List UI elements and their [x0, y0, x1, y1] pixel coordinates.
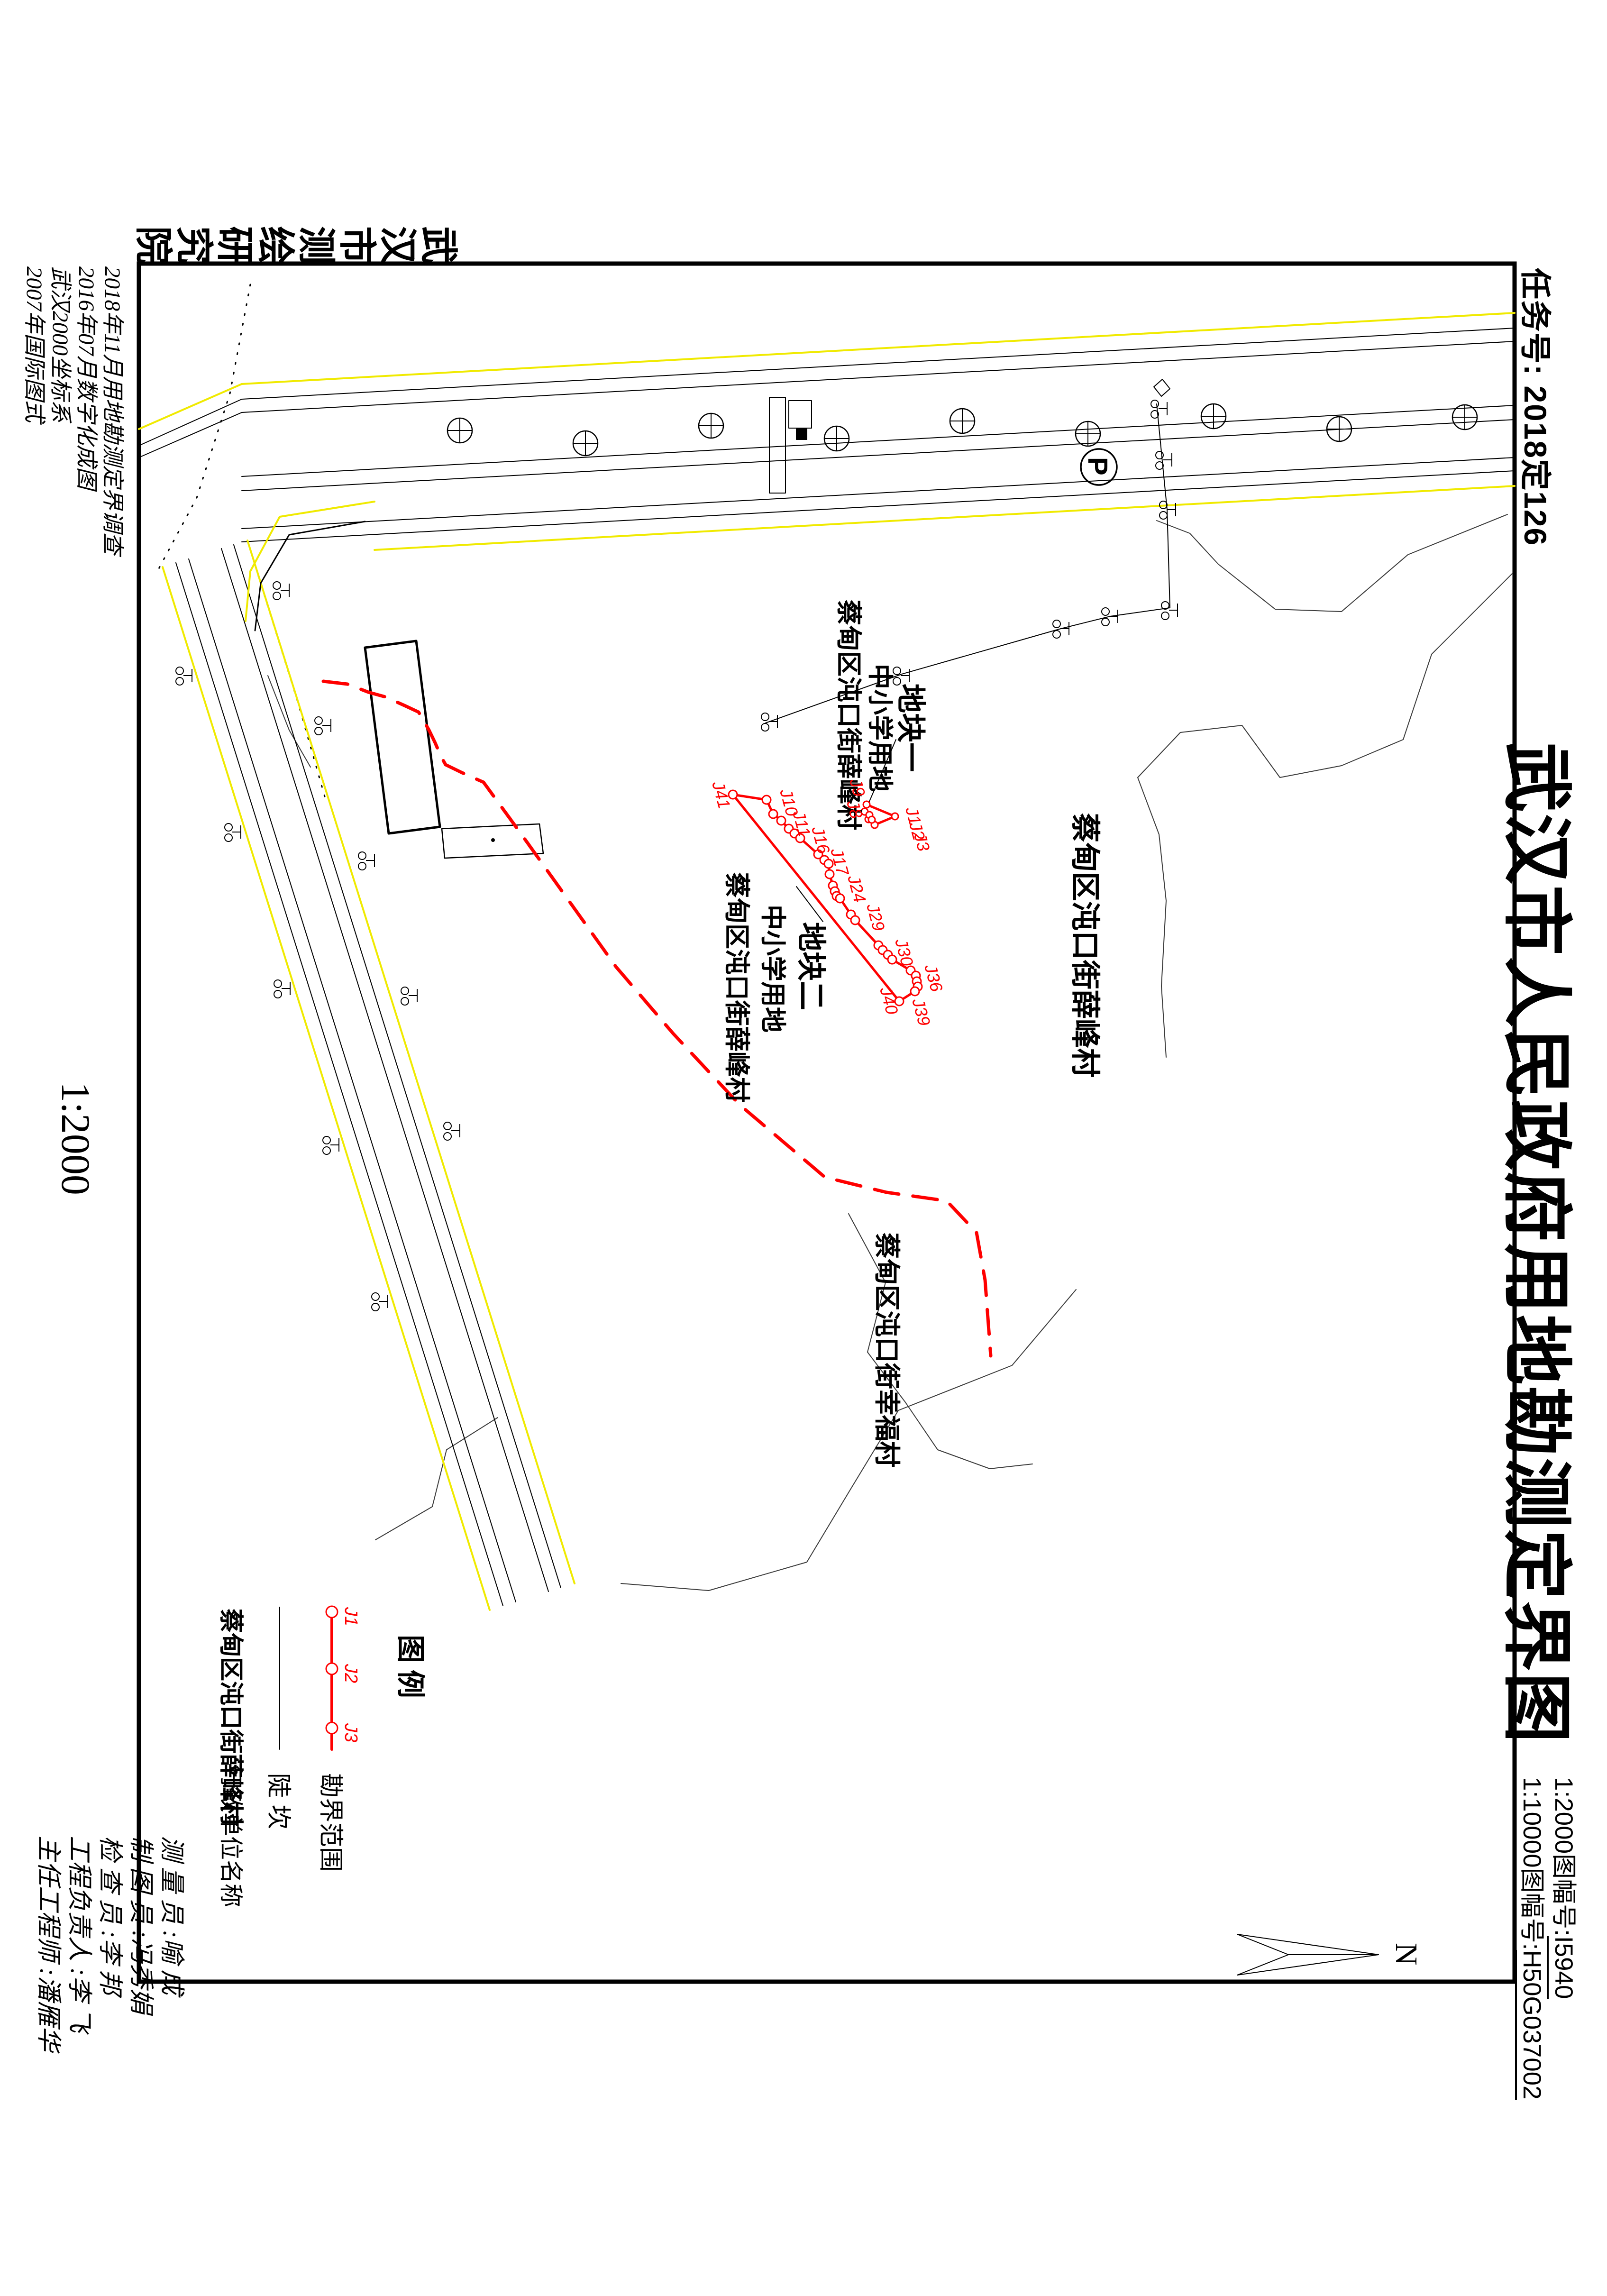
road-line — [242, 457, 1515, 529]
map-label-parcel2-name: 地块二 — [794, 922, 827, 1010]
lamp-icon — [893, 667, 901, 675]
sheet-code-10000: H50G037002 — [1515, 1950, 1546, 2099]
lamp-icon — [225, 834, 232, 842]
terrain-line — [621, 1290, 1076, 1591]
map-canvas: 蔡甸区沌口街薛峰村蔡甸区沌口街幸福村地块一中小学用地蔡甸区沌口街薛峰村地块二中小… — [0, 0, 1607, 2296]
task-number: 任务号: 2018定126 — [1515, 268, 1561, 546]
sheet-number-2000: 1:2000图幅号:I5940 — [1548, 1777, 1580, 2100]
building-outline — [365, 641, 440, 833]
legend-item-label: 陡 坎 — [265, 1773, 292, 1829]
agency-stamp: 武汉市测绘研究院 — [133, 214, 459, 269]
survey-note-line: 2007年国际图式 — [21, 266, 47, 555]
road-line — [242, 405, 1515, 476]
road-line — [139, 412, 242, 457]
boundary-vertex-icon — [762, 796, 771, 804]
road-line — [242, 341, 1515, 412]
lamp-icon — [1102, 618, 1109, 626]
boundary-vertex-icon — [769, 810, 777, 818]
map-scale: 1:2000 — [52, 1082, 100, 1195]
lamp-icon — [323, 1136, 330, 1144]
legend-vertex-icon — [326, 1663, 338, 1674]
boundary-vertex-icon — [851, 916, 859, 924]
terrain-line — [1157, 514, 1507, 612]
road-line — [242, 420, 1515, 491]
scanned-survey-map-page: { "header": { "task_no": "任务号: 2018定126"… — [0, 0, 1607, 2296]
legend-title: 图例 — [394, 1635, 426, 1705]
j-point-label: J41 — [708, 778, 734, 811]
staff-line: 工程负责人 :李 飞 — [64, 1836, 94, 2051]
boundary-vertex-icon — [911, 987, 919, 996]
map-label-parcel1-use: 中小学用地 — [866, 664, 894, 792]
page-title: 武汉市人民政府用地勘测定界图 — [1492, 742, 1594, 1744]
boundary-vertex-icon — [892, 813, 898, 820]
staff-line: 主任工程师 :潘雁华 — [33, 1836, 64, 2051]
lamp-icon — [372, 1303, 379, 1311]
lamp-icon — [761, 723, 769, 731]
sheet-code-2000: I5940 — [1547, 1936, 1578, 1999]
legend-point-label: J2 — [341, 1664, 361, 1683]
parking-symbol-label: P — [1082, 457, 1113, 476]
road-edge-yellow — [163, 567, 490, 1610]
lamp-icon — [358, 862, 366, 870]
terrain-line — [1138, 574, 1512, 1057]
legend-item-label: 行政单位名称 — [218, 1765, 244, 1907]
lamp-icon — [1053, 620, 1060, 628]
road-line — [221, 549, 548, 1592]
boundary-vertex-icon — [836, 894, 844, 903]
north-arrow-line — [1237, 1934, 1288, 1955]
road-line — [176, 563, 503, 1606]
j-point-label: J39 — [908, 996, 934, 1028]
north-label: N — [1389, 1943, 1424, 1966]
boundary-vertex-icon — [868, 816, 875, 823]
map-label-parcel2-village: 蔡甸区沌口街薛峰村 — [722, 872, 751, 1103]
road-line — [242, 328, 1515, 399]
lamp-icon — [176, 667, 183, 675]
building-outline — [789, 401, 812, 428]
lamp-icon — [273, 582, 281, 589]
legend-point-label: J1 — [341, 1607, 361, 1626]
north-arrow-line — [1237, 1934, 1379, 1955]
staff-line: 检 查 员 :李 邦 — [94, 1836, 125, 2051]
lamp-icon — [225, 823, 232, 831]
lamp-icon — [401, 987, 409, 995]
lamp-icon — [1053, 631, 1060, 638]
staff-line: 测 量 员 :喻 成 — [156, 1836, 187, 2051]
road-line — [242, 471, 1515, 542]
staff-line: 制 图 员 :冯秀娟 — [125, 1836, 156, 2051]
road-line — [189, 559, 516, 1602]
annex-dot — [491, 838, 495, 842]
lamp-icon — [315, 727, 322, 735]
north-arrow-line — [1237, 1955, 1379, 1975]
road-edge-yellow — [374, 486, 1515, 550]
road-edge-yellow — [242, 313, 1515, 384]
map-label-village-xingfu: 蔡甸区沌口街幸福村 — [872, 1233, 902, 1467]
building-outline — [769, 397, 785, 493]
lamp-icon — [323, 1147, 330, 1154]
j-point-label: J24 — [844, 872, 870, 905]
map-label-parcel1-name: 地块一 — [894, 684, 927, 772]
shed-outline — [1154, 379, 1170, 396]
lamp-icon — [761, 713, 769, 721]
building-filled — [796, 429, 807, 439]
map-label-village-xuefeng: 蔡甸区沌口街薛峰村 — [1068, 813, 1101, 1078]
legend-item-label: 勘界范围 — [317, 1773, 344, 1872]
lamp-icon — [273, 592, 281, 600]
lamp-icon — [358, 852, 366, 860]
lamp-icon — [274, 980, 282, 988]
road-edge-yellow — [247, 540, 575, 1583]
legend-vertex-icon — [326, 1722, 338, 1734]
legend-point-label: J3 — [341, 1723, 361, 1742]
lamp-icon — [1156, 462, 1163, 469]
curb-dotted-line — [157, 284, 250, 571]
lamp-icon — [274, 990, 282, 998]
j-point-label: J36 — [921, 961, 947, 994]
lamp-icon — [176, 677, 183, 685]
staff-signatures: 测 量 员 :喻 成制 图 员 :冯秀娟检 查 员 :李 邦工程负责人 :李 飞… — [33, 1836, 187, 2051]
lamp-icon — [401, 997, 409, 1005]
lamp-icon — [315, 717, 322, 724]
north-arrow-line — [1237, 1955, 1288, 1975]
lamp-icon — [1151, 400, 1159, 408]
survey-note-line: 2016年07月数字化成图 — [73, 266, 99, 555]
landscape-drawing-stage: 蔡甸区沌口街薛峰村蔡甸区沌口街幸福村地块一中小学用地蔡甸区沌口街薛峰村地块二中小… — [0, 0, 1607, 2296]
lamp-icon — [1161, 612, 1169, 620]
survey-note-line: 2018年11月用地勘测定界调查 — [99, 266, 125, 555]
survey-note-line: 武汉2000坐标系 — [47, 266, 73, 555]
sheet-numbers: 1:2000图幅号:I5940 1:10000图幅号:H50G037002 — [1516, 1777, 1580, 2100]
lamp-icon — [444, 1122, 451, 1130]
map-label-parcel2-use: 中小学用地 — [758, 905, 787, 1033]
lamp-icon — [372, 1293, 379, 1300]
terrain-line — [375, 1418, 498, 1540]
road-fillet — [246, 502, 374, 621]
j-point-label: J29 — [863, 901, 889, 933]
lamp-icon — [444, 1133, 451, 1140]
lamp-icon — [1160, 512, 1167, 519]
survey-notes: 2018年11月用地勘测定界调查2016年07月数字化成图武汉2000坐标系20… — [21, 266, 125, 555]
legend-vertex-icon — [326, 1606, 338, 1618]
lamp-icon — [1102, 608, 1109, 615]
boundary-vertex-icon — [888, 955, 896, 964]
sheet-number-10000: 1:10000图幅号:H50G037002 — [1516, 1777, 1548, 2100]
j-point-label: J40 — [876, 984, 902, 1016]
